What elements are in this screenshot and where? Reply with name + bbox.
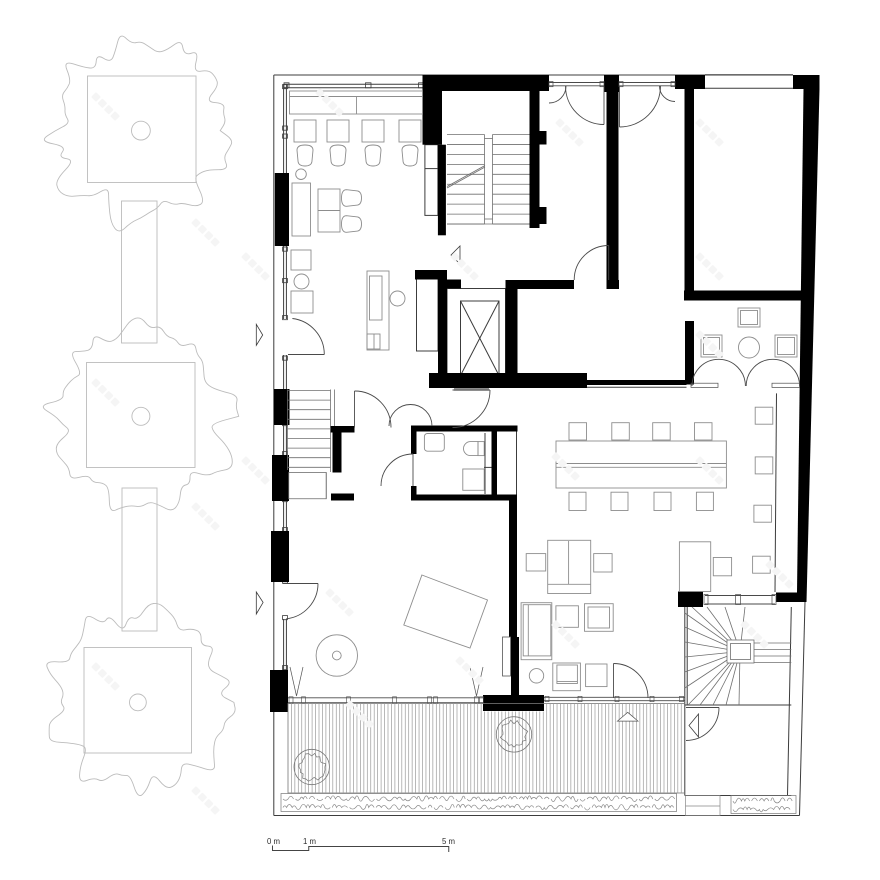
svg-text:5 m: 5 m <box>442 837 455 846</box>
svg-text:1 m: 1 m <box>303 837 316 846</box>
svg-text:0 m: 0 m <box>267 837 280 846</box>
